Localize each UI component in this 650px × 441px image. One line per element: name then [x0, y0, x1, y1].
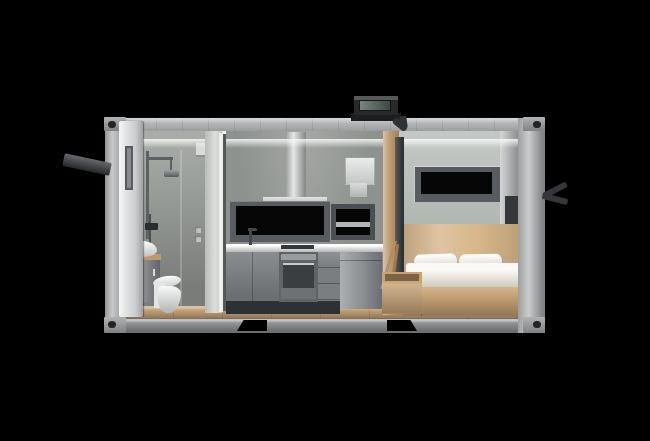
water-heater: [345, 157, 375, 185]
corner-casting: [523, 317, 545, 333]
duct-hook: [399, 116, 408, 129]
kitchen-faucet: [249, 228, 252, 245]
bedroom-window-glass: [421, 172, 492, 194]
right-corner-post: [518, 118, 545, 333]
oven-drawer: [281, 288, 316, 299]
light-switch: [195, 227, 201, 233]
oven-control-panel: [281, 254, 316, 260]
light-switch: [195, 236, 201, 242]
top-rail: [105, 118, 545, 131]
corner-casting: [104, 317, 126, 333]
oven-door-glass: [283, 263, 314, 289]
shower-glass-screen: [180, 150, 182, 306]
side-wall-hook: [542, 193, 569, 205]
shower-head: [164, 170, 179, 177]
wood-storage-box: [382, 272, 422, 314]
refrigerator: [340, 252, 382, 309]
built-in-oven: [279, 252, 318, 302]
kitchen-window-small-glass: [336, 227, 370, 235]
shower-arm: [146, 157, 173, 160]
roof-vent-glass: [359, 100, 391, 111]
partition-door-gap: [223, 134, 226, 311]
cooktop: [281, 245, 314, 249]
corner-casting: [523, 117, 545, 131]
water-heater-outlet: [350, 183, 367, 197]
kitchen-window-small-glass: [336, 209, 370, 222]
bed-mattress: [406, 263, 529, 288]
bottom-rail: [105, 319, 545, 333]
door-window: [125, 146, 133, 190]
ceiling-light-glow: [125, 139, 518, 148]
bed-storage-base: [403, 287, 532, 316]
drawer-unit: [318, 252, 340, 301]
shower-mixer: [145, 223, 158, 230]
base-cabinets: [226, 252, 279, 301]
scene-canvas: [0, 0, 650, 441]
handheld-shower: [149, 214, 151, 246]
